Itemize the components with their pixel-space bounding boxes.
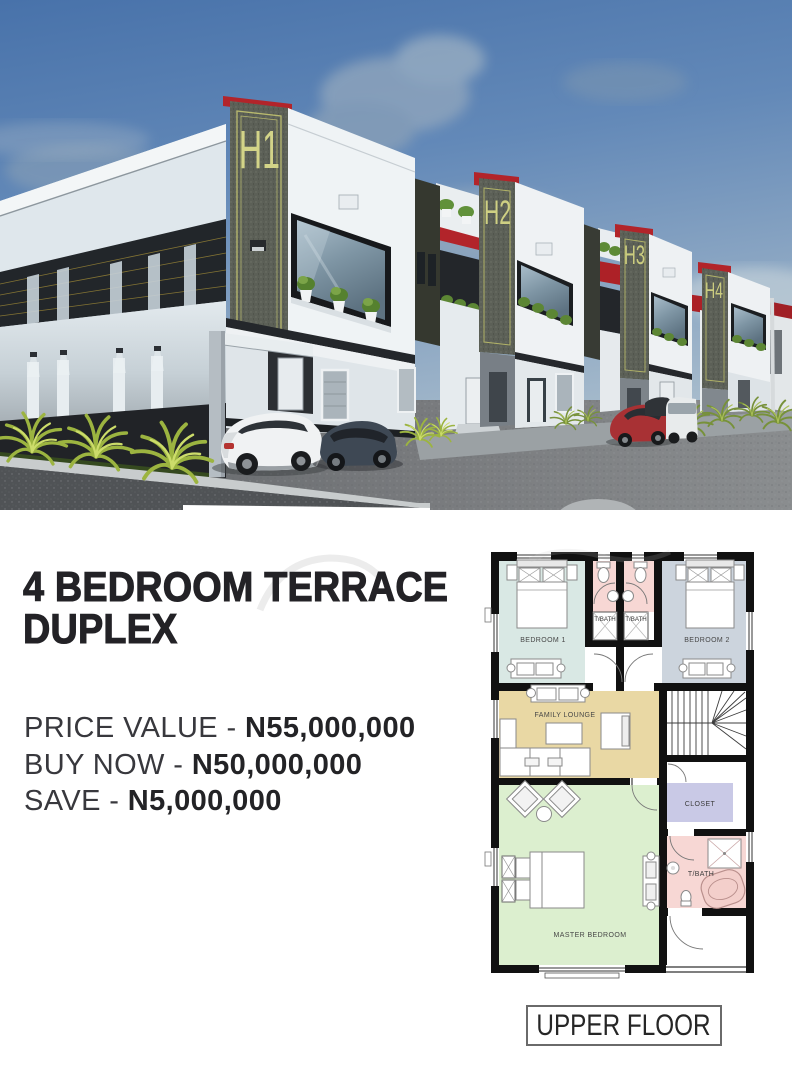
svg-text:BEDROOM 2: BEDROOM 2 (684, 637, 730, 644)
svg-text:H2: H2 (484, 194, 511, 232)
svg-text:H3: H3 (624, 240, 645, 270)
svg-text:T/BATH: T/BATH (688, 871, 714, 878)
svg-text:CLOSET: CLOSET (685, 801, 716, 808)
svg-text:T/BATH: T/BATH (594, 616, 616, 623)
svg-text:BEDROOM 1: BEDROOM 1 (520, 637, 566, 644)
svg-text:T/BATH: T/BATH (625, 616, 647, 623)
svg-text:MASTER BEDROOM: MASTER BEDROOM (554, 932, 627, 939)
svg-text:H4: H4 (705, 278, 723, 303)
svg-text:H1: H1 (239, 120, 280, 180)
svg-text:FAMILY LOUNGE: FAMILY LOUNGE (535, 712, 596, 719)
